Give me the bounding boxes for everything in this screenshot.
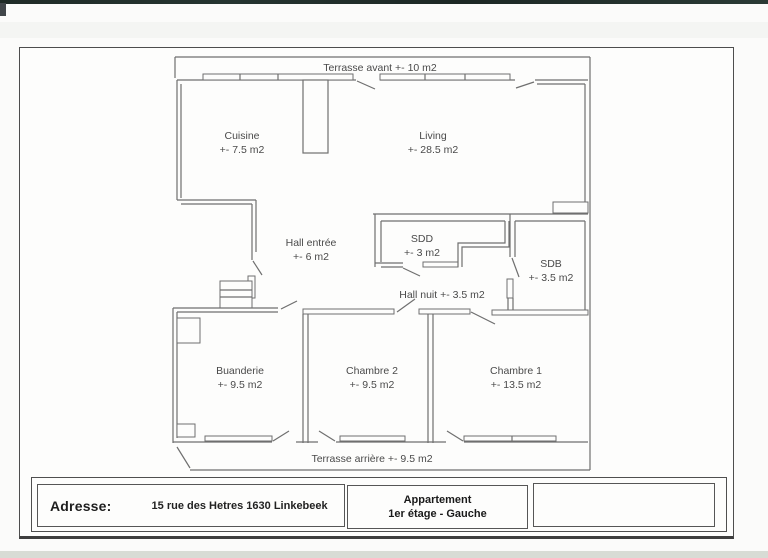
chambre1-door-swing [471,312,495,324]
living-walls [373,84,588,214]
room-label-sdd: SDD [411,233,434,245]
entry-door-swing [252,252,262,275]
room-label-chambre2: Chambre 2 [346,365,398,377]
room-area-buanderie: +- 9.5 m2 [218,379,263,391]
bottom-wall [173,431,588,442]
room-label-sdb: SDB [540,258,562,270]
address-label: Adresse: [50,498,112,514]
room-area-sdd: +- 3 m2 [404,247,440,259]
room-label-terrasse-arriere: Terrasse arrière +- 9.5 m2 [311,453,432,465]
terrace-door-swings [357,81,534,89]
sdb-door-leaf [507,279,513,298]
scanned-floorplan-page: { "rooms": { "terrasse_avant": {"label":… [0,0,768,558]
sdd-walls [375,214,509,276]
room-label-hall-nuit: Hall nuit +- 3.5 m2 [399,289,485,301]
address-box: Adresse: 15 rue des Hetres 1630 Linkebee… [37,484,345,527]
unit-floor: 1er étage - Gauche [388,507,486,521]
floor-plan: Terrasse avant +- 10 m2 Cuisine +- 7.5 m… [0,0,768,558]
room-area-chambre1: +- 13.5 m2 [491,379,542,391]
buanderie-closet [177,318,200,343]
room-label-hall-entree: Hall entrée [286,237,337,249]
empty-box [533,483,715,527]
buanderie-closet-small [177,424,195,437]
entry-walls [177,200,262,308]
room-area-sdb: +- 3.5 m2 [529,272,574,284]
room-area-chambre2: +- 9.5 m2 [350,379,395,391]
room-label-living: Living [419,130,447,142]
buanderie-door-swing [281,301,297,309]
cuisine-column [303,80,328,153]
room-label-buanderie: Buanderie [216,365,264,377]
entry-closet [220,281,252,308]
sdb-door-swing [512,258,519,277]
room-area-living: +- 28.5 m2 [408,144,459,156]
room-area-cuisine: +- 7.5 m2 [220,144,265,156]
room-label-terrasse-avant: Terrasse avant +- 10 m2 [323,62,437,74]
room-area-hall-entree: +- 6 m2 [293,251,329,263]
room-label-cuisine: Cuisine [224,130,259,142]
sdd-door-swing [403,268,420,276]
address-value: 15 rue des Hetres 1630 Linkebeek [152,500,328,512]
unit-type: Appartement [404,493,472,507]
radiator-box [553,202,588,213]
unit-box: Appartement 1er étage - Gauche [347,485,528,529]
bedroom-top-walls [303,299,588,324]
room-label-chambre1: Chambre 1 [490,365,542,377]
